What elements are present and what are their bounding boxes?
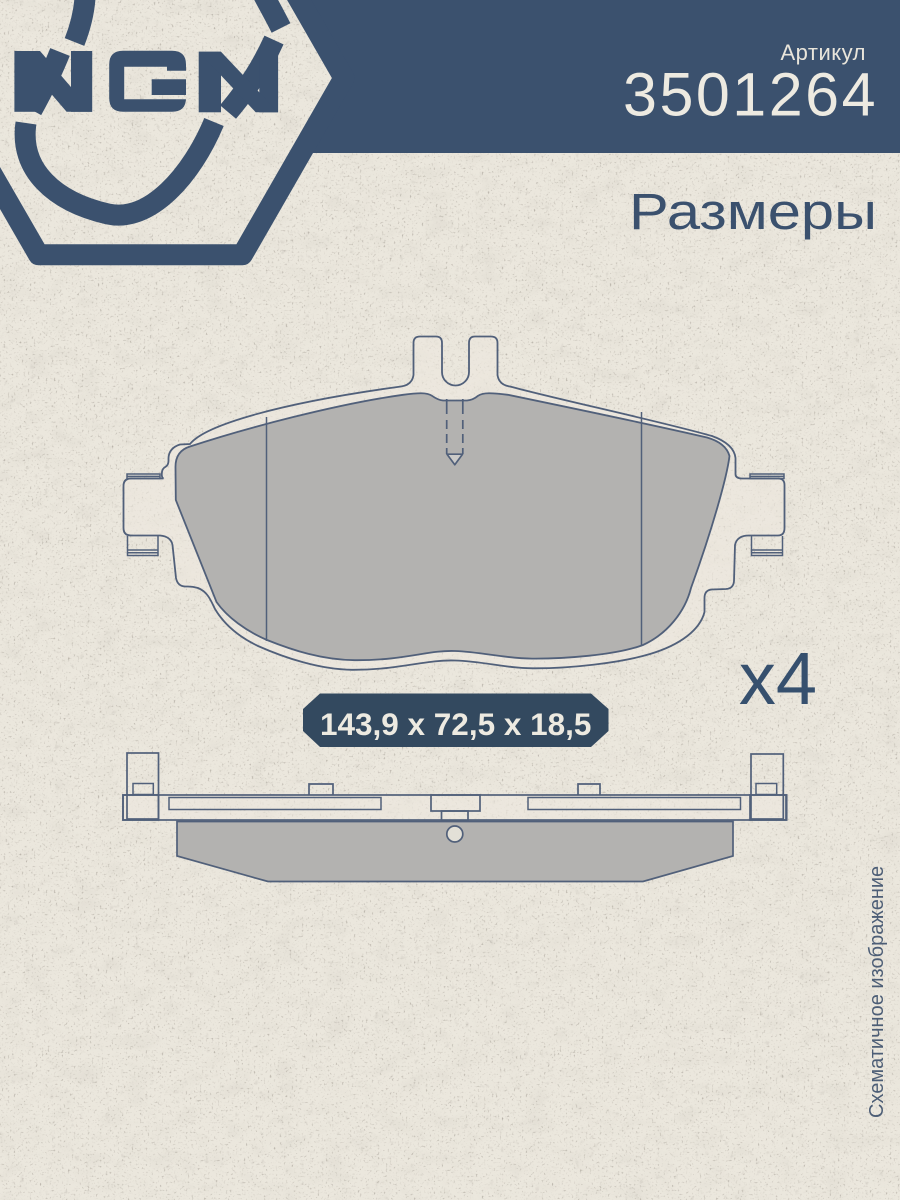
svg-text:Схематичное изображение: Схематичное изображение xyxy=(866,866,888,1118)
svg-text:3501264: 3501264 xyxy=(623,61,878,129)
svg-text:143,9 x 72,5 x 18,5: 143,9 x 72,5 x 18,5 xyxy=(320,706,592,742)
svg-text:x4: x4 xyxy=(739,637,817,720)
svg-text:Размеры: Размеры xyxy=(629,183,877,240)
